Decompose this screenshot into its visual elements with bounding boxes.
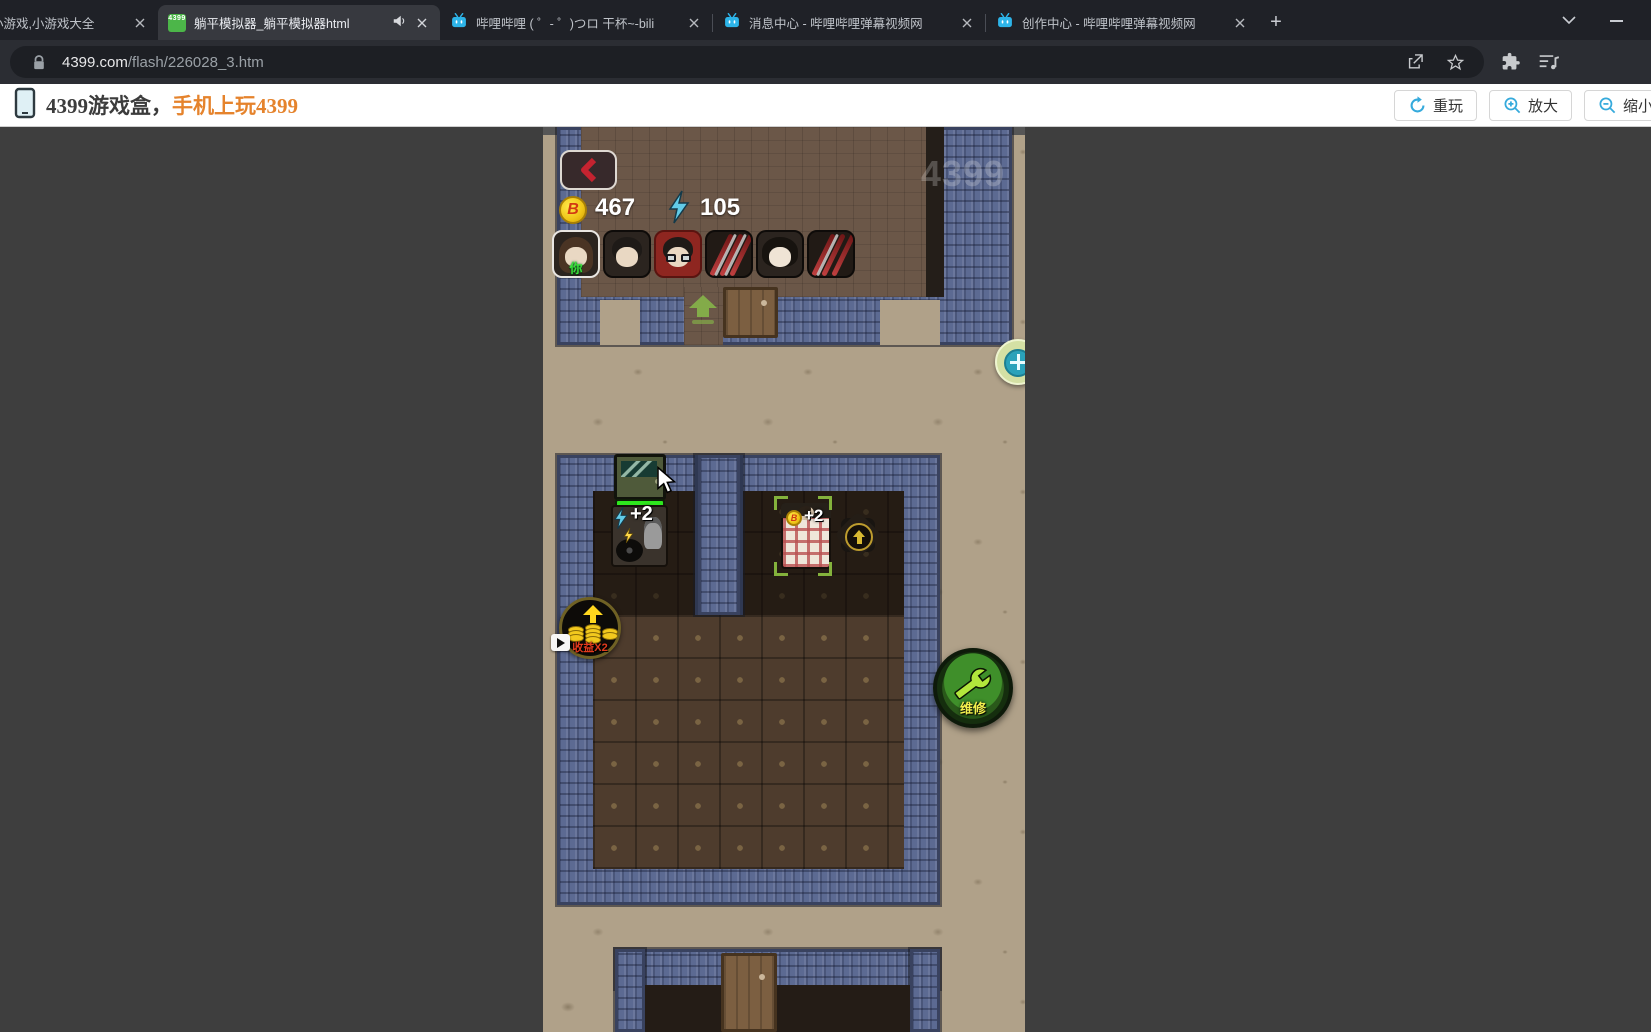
bilibili-icon [450, 13, 468, 32]
close-icon[interactable] [414, 15, 430, 31]
avatar-you[interactable]: 你 [552, 230, 600, 278]
tab-bilibili-creator[interactable]: 创作中心 - 哔哩哔哩弹幕视频网 [986, 5, 1258, 40]
top-building-door[interactable] [723, 287, 778, 338]
door-window [621, 461, 657, 477]
entrance-path [684, 287, 723, 345]
tab-title: 9小游戏,小游戏大全 [0, 13, 124, 32]
tab-title: 哔哩哔哩 ( ゜- ゜)つロ 干杯~-bili [476, 13, 678, 32]
mouse-cursor [656, 466, 678, 501]
close-icon[interactable] [686, 15, 702, 31]
boost-up-arrow-icon [583, 605, 603, 615]
character-roster: 你 [552, 230, 855, 278]
roof-divider-notch [695, 455, 743, 615]
repair-label: 维修 [937, 698, 1009, 717]
coin-letter: B [567, 201, 579, 219]
repair-button[interactable]: 维修 [933, 648, 1013, 728]
brand-prefix: 4399游戏盒， [46, 94, 172, 118]
bilibili-icon [996, 13, 1014, 32]
avatar-character[interactable] [603, 230, 651, 278]
zoom-out-button[interactable]: 缩小 [1584, 90, 1651, 121]
lock-icon[interactable] [26, 49, 52, 75]
avatar-slot-clawed[interactable] [705, 230, 753, 278]
coin-gain-icon: B [786, 510, 802, 526]
close-icon[interactable] [132, 15, 148, 31]
avatar-character-alert[interactable] [654, 230, 702, 278]
energy-bolt-icon [667, 190, 691, 229]
back-button[interactable] [560, 150, 617, 190]
upgrade-arrow-icon[interactable] [845, 523, 873, 551]
bilibili-icon [723, 13, 741, 32]
brand-highlight: 手机上玩4399 [172, 94, 298, 118]
door-knob [761, 300, 767, 306]
tab-title: 消息中心 - 哔哩哔哩弹幕视频网 [749, 13, 951, 32]
coin-icon: B [559, 196, 587, 224]
tab-bilibili-home[interactable]: 哔哩哔哩 ( ゜- ゜)つロ 干杯~-bili [440, 5, 712, 40]
coin-letter: B [791, 513, 798, 523]
tab-title: 躺平模拟器_躺平模拟器html [194, 13, 384, 32]
brand-title: 4399游戏盒，手机上玩4399 [46, 90, 298, 120]
extensions-puzzle-icon[interactable] [1498, 49, 1524, 75]
bottom-building-roof-corner [615, 949, 645, 1032]
selection-bracket [774, 496, 788, 510]
boost-label: 收益X2 [562, 639, 618, 655]
game-canvas[interactable]: B 467 105 你 [543, 127, 1025, 1032]
door-knob [759, 974, 765, 980]
zoom-out-icon [1598, 96, 1617, 115]
floating-map-widget[interactable] [995, 339, 1025, 385]
tab-bar: 9小游戏,小游戏大全 4399 躺平模拟器_躺平模拟器html 哔哩哔哩 ( ゜… [0, 0, 1651, 40]
video-ad-play-icon [551, 634, 570, 651]
zoom-in-button[interactable]: 放大 [1489, 90, 1572, 121]
avatar-slot-clawed[interactable] [807, 230, 855, 278]
zoom-out-label: 缩小 [1623, 95, 1651, 116]
small-bolt-icon [623, 527, 634, 549]
browser-toolbar: 4399.com/flash/226028_3.htm [0, 40, 1651, 84]
close-icon[interactable] [959, 15, 975, 31]
glasses-icon [666, 254, 676, 262]
tab-title: 创作中心 - 哔哩哔哩弹幕视频网 [1022, 13, 1224, 32]
refresh-icon [1408, 96, 1427, 115]
phone-icon [14, 87, 36, 124]
replay-label: 重玩 [1433, 95, 1463, 116]
url-bar[interactable]: 4399.com/flash/226028_3.htm [10, 46, 1484, 78]
energy-gain-float: +2 [630, 503, 653, 526]
minimize-button[interactable] [1610, 20, 1623, 22]
zoom-in-icon [1503, 96, 1522, 115]
avatar-character[interactable] [756, 230, 804, 278]
bottom-building-interior [645, 985, 910, 1032]
4399-favicon-icon: 4399 [168, 14, 186, 32]
share-icon[interactable] [1402, 49, 1428, 75]
audio-speaker-icon[interactable] [392, 14, 406, 31]
media-controls-icon[interactable] [1536, 49, 1562, 75]
game-area: B 467 105 你 [0, 127, 1651, 1032]
tab-search-chevron-icon[interactable] [1562, 12, 1576, 30]
avatar-face [616, 247, 638, 267]
close-icon[interactable] [1232, 15, 1248, 31]
tab-bilibili-messages[interactable]: 消息中心 - 哔哩哔哩弹幕视频网 [713, 5, 985, 40]
browser-window: 9小游戏,小游戏大全 4399 躺平模拟器_躺平模拟器html 哔哩哔哩 ( ゜… [0, 0, 1651, 1032]
selection-bracket [774, 562, 788, 576]
new-tab-button[interactable]: + [1258, 6, 1294, 38]
ceiling-fan[interactable] [834, 507, 882, 567]
url-path: /flash/226028_3.htm [128, 54, 264, 71]
bottom-building-door[interactable] [721, 953, 777, 1032]
tab-games-portal[interactable]: 9小游戏,小游戏大全 [0, 5, 158, 40]
roof-step-notch [600, 300, 640, 345]
url-domain: 4399.com [62, 54, 128, 71]
game-header-bar: 4399游戏盒，手机上玩4399 重玩 放大 缩小 [0, 84, 1651, 127]
zoom-in-label: 放大 [1528, 95, 1558, 116]
coin-count: 467 [595, 194, 635, 222]
energy-count: 105 [700, 194, 740, 222]
bottom-building-roof [615, 949, 940, 989]
avatar-face [769, 247, 791, 267]
replay-button[interactable]: 重玩 [1394, 90, 1477, 121]
glasses-icon [681, 254, 691, 262]
exit-arrow-icon [689, 295, 717, 324]
coin-gain-float: +2 [804, 506, 823, 526]
selection-bracket [818, 562, 832, 576]
bottom-building-roof-corner [910, 949, 940, 1032]
you-badge: 你 [554, 258, 598, 277]
4399-watermark: 4399 [921, 153, 1005, 195]
tab-game-active[interactable]: 4399 躺平模拟器_躺平模拟器html [158, 5, 440, 40]
bookmark-star-icon[interactable] [1442, 49, 1468, 75]
roof-step-notch [880, 300, 940, 345]
back-chevron-icon [578, 157, 600, 183]
